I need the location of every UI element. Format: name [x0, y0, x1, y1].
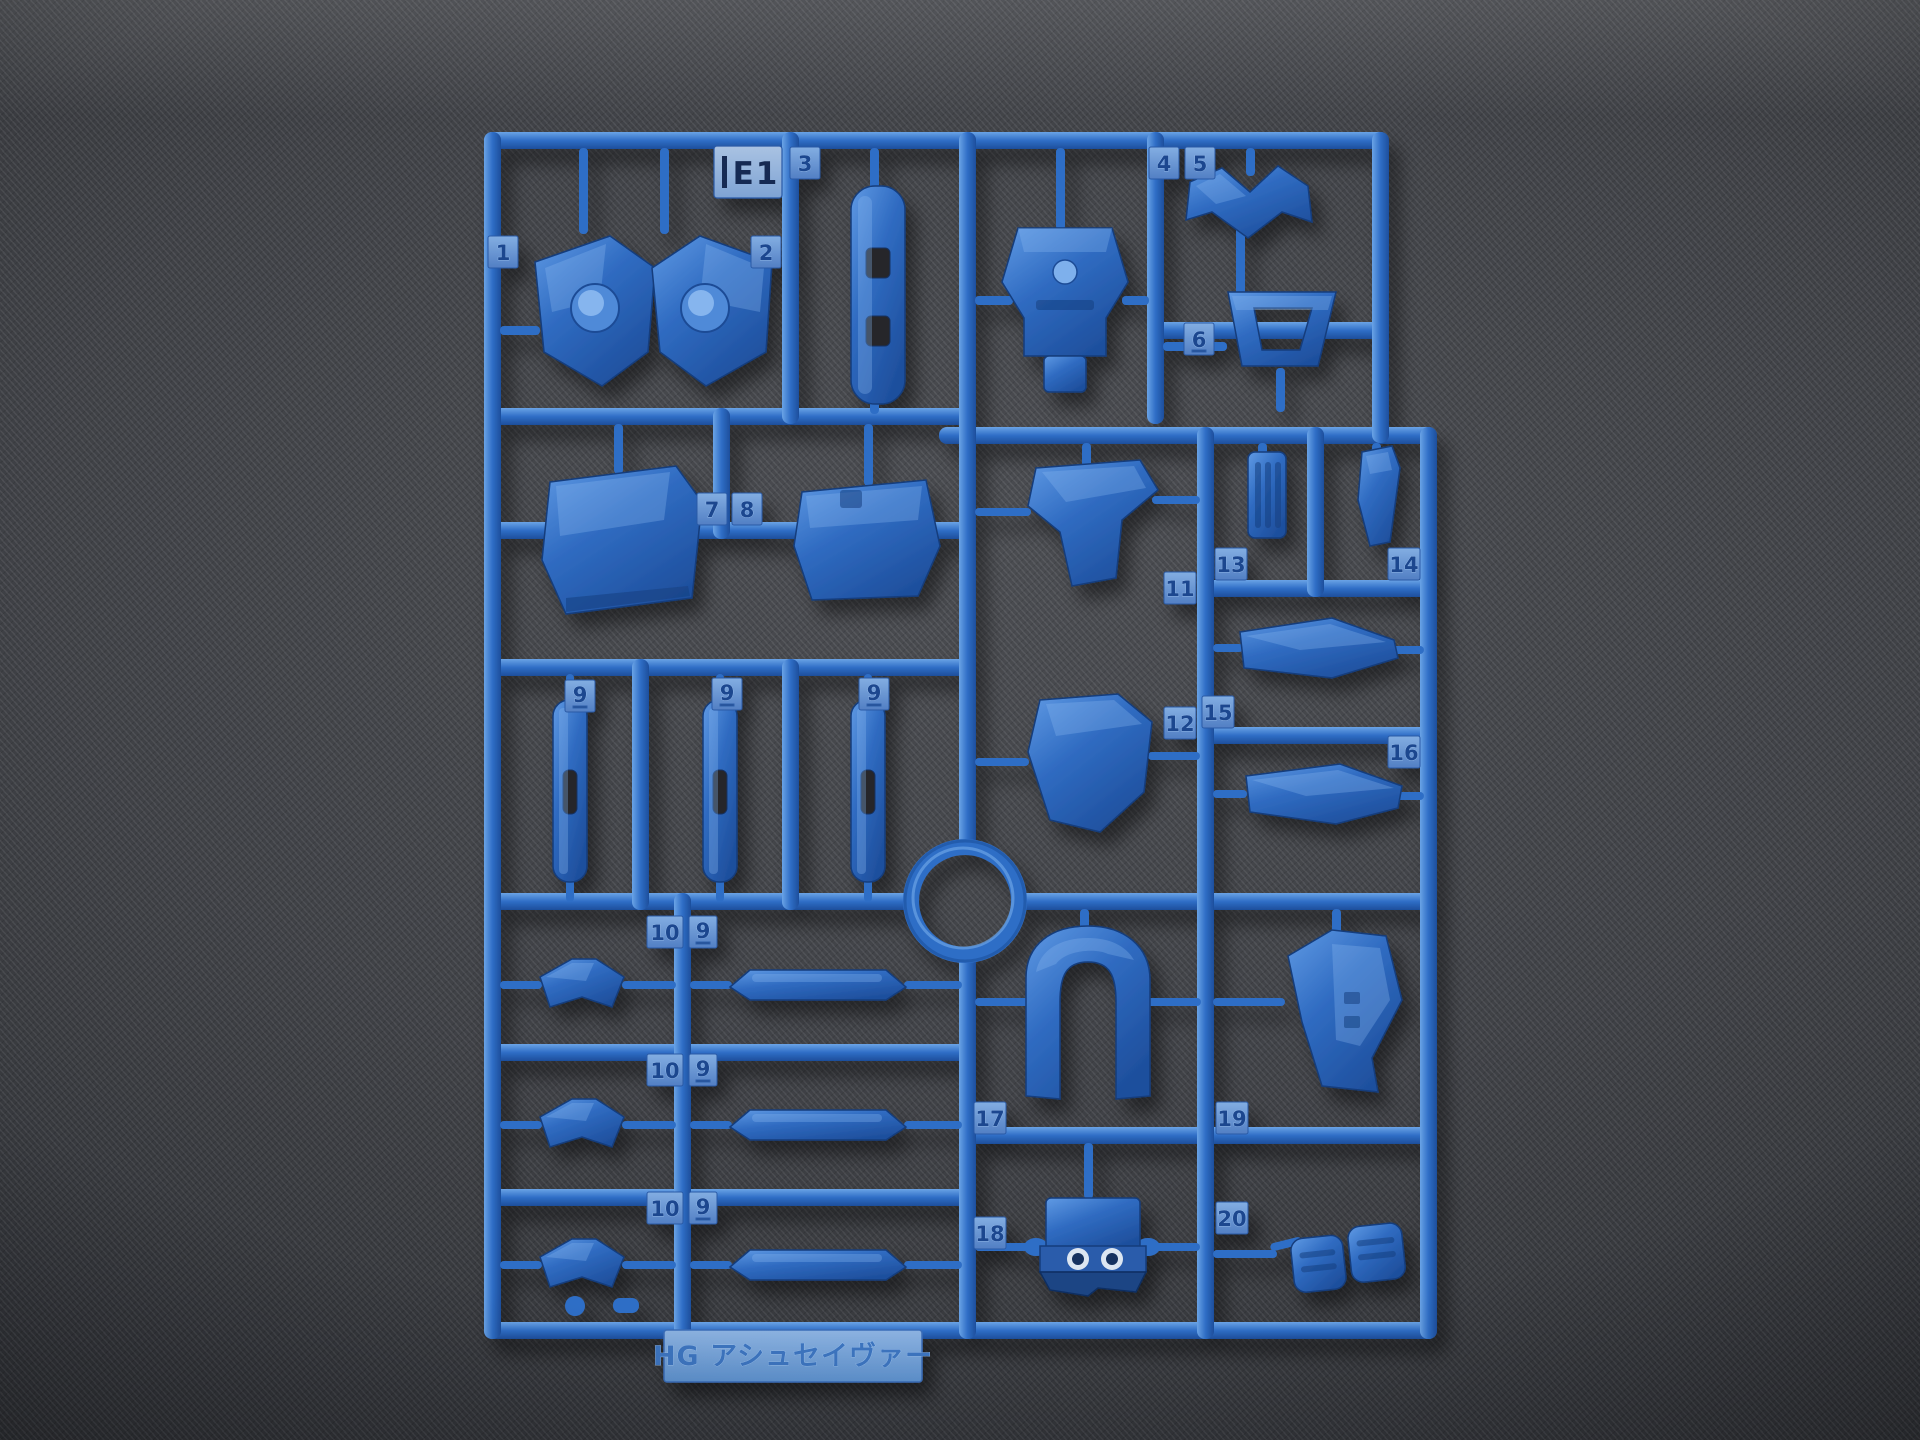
- svg-text:17: 17: [975, 1107, 1004, 1131]
- tag-20: 20: [1216, 1202, 1248, 1234]
- svg-text:6: 6: [1192, 328, 1207, 352]
- part-19-bracket: [1288, 930, 1402, 1092]
- tag-6: 6: [1184, 323, 1214, 355]
- tag-19: 19: [1216, 1102, 1248, 1134]
- svg-text:12: 12: [1165, 712, 1194, 736]
- kit-nameplate-text: HG アシュセイヴァー: [653, 1340, 933, 1372]
- tag-8: 8: [732, 493, 762, 525]
- tag-12: 12: [1164, 707, 1196, 739]
- part-1-shoulder-left: [535, 236, 655, 386]
- svg-text:16: 16: [1389, 741, 1418, 765]
- tag-7: 7: [697, 493, 727, 525]
- svg-text:10: 10: [650, 1059, 679, 1083]
- tag-18: 18: [974, 1217, 1006, 1249]
- svg-text:10: 10: [650, 1197, 679, 1221]
- tag-13: 13: [1215, 548, 1247, 580]
- kit-nameplate: HG アシュセイヴァー: [653, 1330, 933, 1382]
- svg-text:2: 2: [759, 241, 774, 265]
- part-4-torso: [1002, 228, 1128, 392]
- runner-code-text: E1: [733, 156, 780, 192]
- svg-text:18: 18: [975, 1222, 1004, 1246]
- svg-text:14: 14: [1389, 553, 1418, 577]
- part-17-fork: [1026, 926, 1150, 1099]
- part-9-blade-row2: [730, 1110, 906, 1140]
- svg-text:11: 11: [1165, 577, 1194, 601]
- svg-text:3: 3: [798, 152, 813, 176]
- svg-text:15: 15: [1203, 701, 1232, 725]
- svg-text:13: 13: [1216, 553, 1245, 577]
- svg-text:9: 9: [696, 1057, 711, 1081]
- svg-text:7: 7: [705, 498, 720, 522]
- svg-text:10: 10: [650, 921, 679, 945]
- tag-3: 3: [790, 147, 820, 179]
- part-9-blade-row3: [730, 1250, 906, 1280]
- tag-9b: 9: [712, 678, 742, 710]
- tag-16: 16: [1388, 736, 1420, 768]
- svg-text:20: 20: [1217, 1207, 1246, 1231]
- part-7-panel: [542, 466, 702, 614]
- tag-5: 5: [1185, 147, 1215, 179]
- part-10-fin-row3: [540, 1239, 624, 1287]
- part-3-connector-bar: [851, 186, 905, 404]
- tag-10-row1: 10: [647, 916, 683, 948]
- runner-code-mark: [722, 156, 727, 188]
- part-13-grille: [1248, 452, 1286, 538]
- tag-10-row2: 10: [647, 1054, 683, 1086]
- tag-9-row1: 9: [689, 916, 717, 948]
- svg-text:1: 1: [496, 241, 511, 265]
- part-16-blade: [1246, 764, 1402, 824]
- part-18-chest-with-lenses: [1040, 1198, 1146, 1296]
- svg-text:9: 9: [573, 683, 588, 707]
- tag-2: 2: [751, 236, 781, 268]
- tag-10-row3: 10: [647, 1192, 683, 1224]
- part-12-wing-panel: [1028, 694, 1152, 832]
- tag-9a: 9: [565, 680, 595, 712]
- part-8-panel: [794, 480, 940, 600]
- tag-4: 4: [1149, 147, 1179, 179]
- runner-code-plate: E1: [714, 146, 782, 198]
- part-9-strut-c: [851, 700, 885, 882]
- tag-14: 14: [1388, 548, 1420, 580]
- tag-1: 1: [488, 236, 518, 268]
- tag-15: 15: [1202, 696, 1234, 728]
- svg-text:5: 5: [1193, 152, 1208, 176]
- svg-text:9: 9: [867, 681, 882, 705]
- part-15-blade: [1240, 618, 1398, 678]
- tag-9-row3: 9: [689, 1192, 717, 1224]
- tag-9-row2: 9: [689, 1054, 717, 1086]
- svg-text:19: 19: [1217, 1107, 1246, 1131]
- part-14-rod: [1358, 446, 1400, 546]
- svg-text:9: 9: [696, 1195, 711, 1219]
- svg-text:4: 4: [1157, 152, 1172, 176]
- part-9-strut-a: [553, 700, 587, 882]
- runner-sprue: E1 1 2 3 4 5 6 7 8 9 9 9 10 9 10 9 10 9 …: [484, 132, 1437, 1382]
- svg-text:8: 8: [740, 498, 755, 522]
- tag-9c: 9: [859, 678, 889, 710]
- part-10-fin-row1: [540, 959, 624, 1007]
- part-20-foot-pads: [1289, 1222, 1407, 1293]
- svg-text:9: 9: [720, 681, 735, 705]
- sprue-photo: E1 1 2 3 4 5 6 7 8 9 9 9 10 9 10 9 10 9 …: [0, 0, 1920, 1440]
- part-9-blade-row1: [730, 970, 906, 1000]
- part-9-strut-b: [703, 700, 737, 882]
- tag-17: 17: [974, 1102, 1006, 1134]
- svg-text:9: 9: [696, 919, 711, 943]
- tag-11: 11: [1164, 572, 1196, 604]
- part-11-wing-panel: [1028, 460, 1158, 586]
- center-ring: [905, 841, 1025, 961]
- part-10-fin-row2: [540, 1099, 624, 1147]
